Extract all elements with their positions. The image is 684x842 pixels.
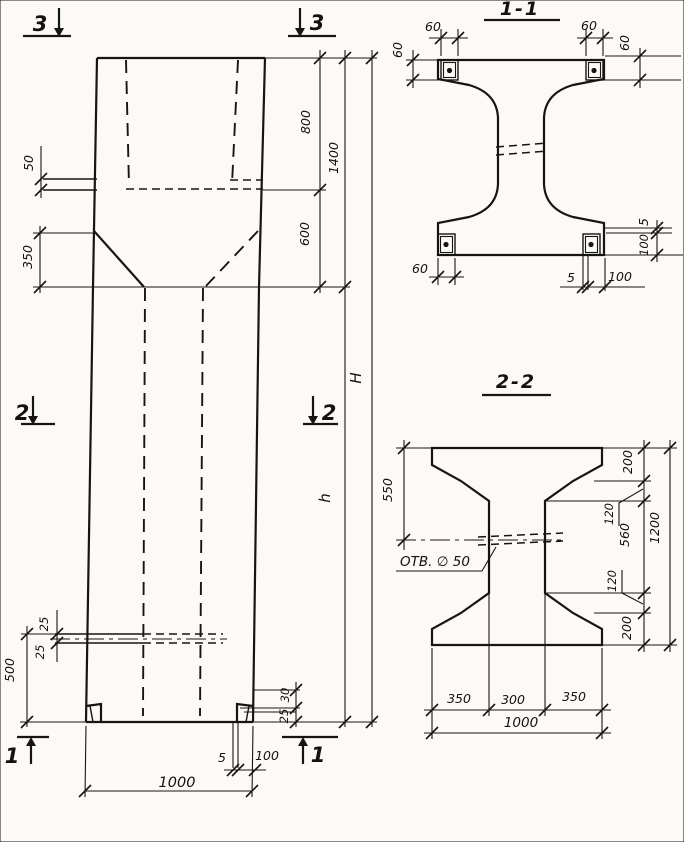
arrow-up-head-icon bbox=[26, 737, 36, 746]
left-foot bbox=[86, 704, 101, 722]
dim-1200: 1200 bbox=[647, 512, 662, 544]
dim-plate-5: 5 bbox=[218, 750, 226, 765]
marker-2-right-label: 2 bbox=[322, 401, 337, 425]
dim-500: 500 bbox=[2, 658, 17, 682]
dim-120-top: 120 bbox=[602, 503, 616, 525]
dim-560: 560 bbox=[617, 523, 632, 547]
anchor-dot-icon bbox=[591, 68, 596, 73]
dim-350-right: 350 bbox=[562, 689, 586, 704]
section-1-1-title: 1-1 bbox=[500, 0, 540, 20]
ext-lines-right bbox=[545, 448, 677, 645]
dim-hole-25-lower: 25 bbox=[33, 645, 47, 660]
dim-800: 800 bbox=[298, 110, 313, 134]
section-1-1-view: 1-1 60 60 60 60 bbox=[390, 0, 683, 293]
dim-120-bottom: 120 bbox=[605, 570, 619, 592]
ledge-lines bbox=[43, 179, 97, 190]
dim-100-right: 100 bbox=[637, 234, 651, 256]
dim-hole-25-upper: 25 bbox=[37, 617, 51, 632]
dim-350-left: 350 bbox=[447, 691, 471, 706]
upper-web-hidden-right bbox=[232, 60, 238, 184]
dim-line-550 bbox=[396, 440, 432, 550]
dim-350: 350 bbox=[20, 245, 35, 269]
dim-5-bottom: 5 bbox=[567, 270, 575, 285]
drawing-sheet: 3 3 2 2 1 1 bbox=[0, 0, 684, 842]
web-hole-hidden bbox=[496, 143, 547, 155]
right-foot bbox=[237, 704, 253, 722]
left-foot-chamfer bbox=[90, 706, 93, 722]
dim-1000: 1000 bbox=[159, 775, 196, 791]
dim-1000: 1000 bbox=[504, 715, 538, 731]
anchor-dot-icon bbox=[588, 242, 593, 247]
dim-60-bl: 60 bbox=[412, 261, 428, 276]
dim-1400: 1400 bbox=[326, 142, 341, 174]
dimension-ticks bbox=[407, 32, 663, 293]
marker-1-left-label: 1 bbox=[5, 744, 20, 768]
dim-foot-25: 25 bbox=[277, 709, 291, 724]
upper-web-hidden-left bbox=[126, 60, 129, 186]
dim-foot-30: 30 bbox=[278, 688, 292, 703]
elevation-view: 3 3 2 2 1 1 bbox=[2, 8, 378, 797]
dim-200-top: 200 bbox=[620, 450, 635, 474]
dimension-ticks bbox=[398, 442, 676, 739]
technical-drawing-canvas: 3 3 2 2 1 1 bbox=[0, 0, 684, 842]
dim-ledge-50: 50 bbox=[21, 155, 36, 171]
dim-line-500 bbox=[21, 626, 55, 727]
hole-diameter-label: ОТВ. ∅ 50 bbox=[400, 554, 470, 570]
taper-left-edge bbox=[94, 231, 144, 287]
section-marker-3-right: 3 bbox=[288, 8, 336, 37]
dim-H: H bbox=[347, 372, 365, 383]
taper-right-hidden bbox=[206, 231, 258, 286]
section-marker-1-right: 1 bbox=[282, 737, 338, 767]
leader-120-bottom bbox=[622, 570, 643, 604]
dim-5-right: 5 bbox=[636, 218, 651, 226]
embedded-plate-bottom-right bbox=[583, 234, 600, 255]
column-right-edge bbox=[253, 58, 265, 722]
marker-2-left-label: 2 bbox=[15, 401, 30, 425]
marker-1-right-label: 1 bbox=[311, 743, 326, 767]
leader-120-top bbox=[619, 489, 643, 526]
dim-200-bottom: 200 bbox=[619, 616, 634, 640]
dim-600: 600 bbox=[297, 222, 312, 246]
section-2-2-outline bbox=[432, 448, 602, 645]
embedded-plate-top-right bbox=[586, 60, 603, 80]
dim-60-tl: 60 bbox=[425, 19, 441, 34]
section-2-2-title: 2-2 bbox=[496, 371, 536, 393]
web-hidden-right bbox=[200, 288, 203, 716]
embedded-plate-bottom-left bbox=[438, 234, 455, 255]
section-marker-1-left: 1 bbox=[5, 737, 49, 768]
dim-60-left: 60 bbox=[390, 42, 405, 58]
anchor-dot-icon bbox=[447, 68, 452, 73]
section-marker-2-right: 2 bbox=[303, 396, 338, 425]
section-marker-2-left: 2 bbox=[15, 396, 55, 425]
section-2-2-view: 2-2 ОТВ. ∅ 50 550 200 120 560 120 200 12… bbox=[380, 371, 677, 739]
dim-60-tr: 60 bbox=[581, 18, 597, 33]
arrow-up-head-icon bbox=[298, 737, 308, 746]
paper-background bbox=[0, 0, 684, 842]
dim-550: 550 bbox=[380, 478, 395, 502]
web-hole-hidden bbox=[478, 533, 563, 545]
dim-100-bottom: 100 bbox=[608, 269, 632, 284]
dim-h: h bbox=[316, 493, 334, 503]
dim-300: 300 bbox=[501, 692, 525, 707]
web-hidden-left bbox=[143, 288, 145, 716]
marker-3-right-label: 3 bbox=[310, 11, 325, 35]
anchor-dot-icon bbox=[443, 242, 448, 247]
embedded-plate-top-left bbox=[441, 60, 458, 80]
marker-3-left-label: 3 bbox=[33, 12, 48, 36]
dim-60-right: 60 bbox=[617, 35, 632, 51]
section-marker-3-left: 3 bbox=[23, 8, 71, 37]
column-left-edge bbox=[86, 58, 97, 722]
section-1-1-outline bbox=[438, 60, 604, 255]
dim-plate-100: 100 bbox=[255, 748, 279, 763]
